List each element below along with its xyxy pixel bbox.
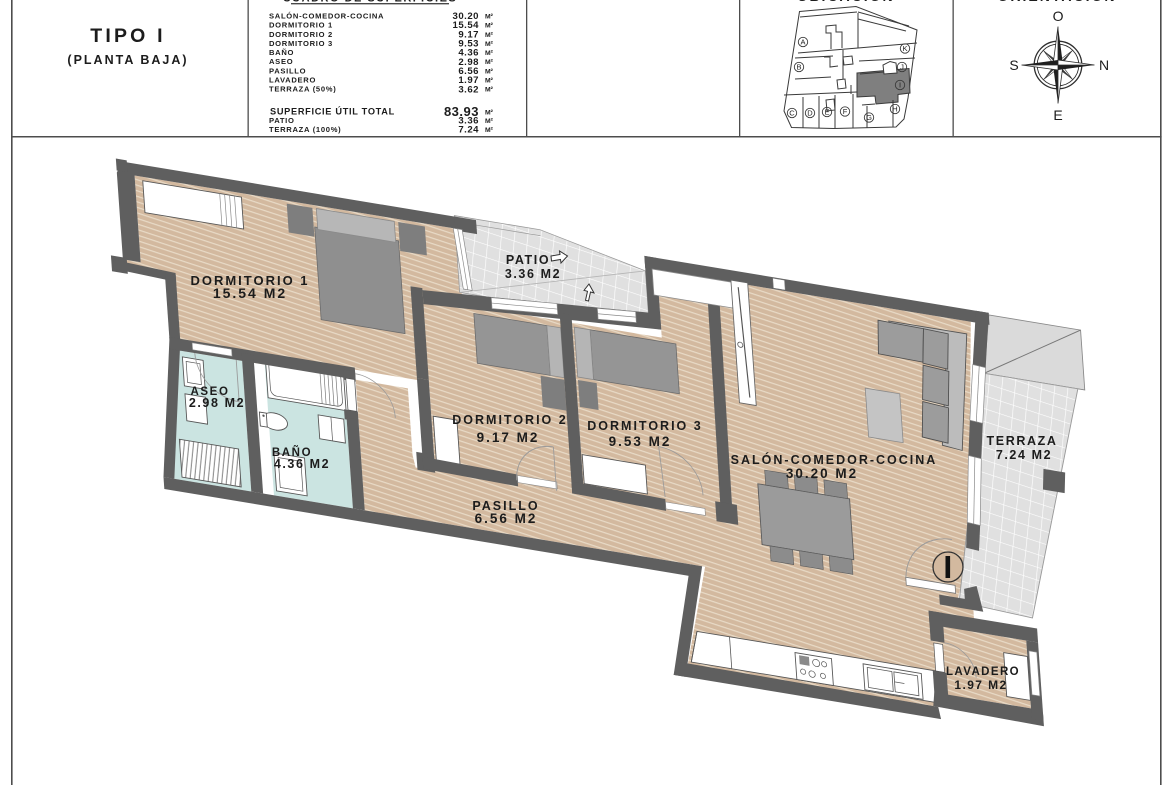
svg-text:J: J	[900, 63, 904, 72]
svg-text:PATIO: PATIO	[269, 116, 295, 125]
svg-text:DORMITORIO 3: DORMITORIO 3	[269, 39, 333, 48]
svg-text:ASEO: ASEO	[269, 57, 293, 66]
svg-text:O: O	[1053, 8, 1064, 24]
svg-text:6.56 M2: 6.56 M2	[475, 511, 538, 526]
svg-text:M²: M²	[485, 23, 494, 30]
svg-text:C: C	[789, 109, 795, 118]
svg-text:TERRAZA (50%): TERRAZA (50%)	[269, 85, 336, 94]
svg-text:TIPO I: TIPO I	[90, 25, 166, 47]
svg-text:M²: M²	[485, 59, 494, 66]
svg-text:M²: M²	[485, 110, 494, 117]
svg-text:B: B	[796, 63, 801, 72]
svg-text:9.17 M2: 9.17 M2	[477, 430, 540, 445]
svg-text:I: I	[899, 81, 901, 90]
svg-text:1.97 M2: 1.97 M2	[954, 678, 1007, 692]
svg-text:M²: M²	[485, 50, 494, 57]
svg-text:E: E	[824, 108, 829, 117]
svg-text:M²: M²	[485, 13, 494, 20]
svg-text:3.62: 3.62	[458, 84, 479, 95]
svg-text:7.24 M2: 7.24 M2	[996, 448, 1052, 462]
svg-text:SALÓN-COMEDOR-COCINA: SALÓN-COMEDOR-COCINA	[731, 452, 938, 467]
svg-text:BAÑO: BAÑO	[269, 48, 294, 57]
svg-text:DORMITORIO 3: DORMITORIO 3	[587, 419, 702, 433]
svg-text:H: H	[892, 105, 897, 114]
svg-text:G: G	[866, 113, 872, 122]
svg-text:TERRAZA: TERRAZA	[987, 434, 1058, 448]
svg-text:F: F	[843, 107, 848, 116]
svg-text:(PLANTA BAJA): (PLANTA BAJA)	[67, 53, 188, 67]
svg-text:D: D	[807, 109, 813, 118]
svg-text:S: S	[1009, 57, 1018, 73]
svg-text:TERRAZA (100%): TERRAZA (100%)	[269, 125, 341, 134]
svg-text:K: K	[902, 44, 907, 53]
svg-text:DORMITORIO 1: DORMITORIO 1	[269, 21, 333, 30]
svg-text:DORMITORIO 2: DORMITORIO 2	[269, 30, 333, 39]
svg-text:LAVADERO: LAVADERO	[269, 76, 316, 85]
svg-text:DORMITORIO 2: DORMITORIO 2	[452, 413, 567, 427]
svg-text:M²: M²	[485, 78, 494, 85]
svg-text:ORIENTACIÓN: ORIENTACIÓN	[998, 0, 1117, 4]
svg-text:3.36 M2: 3.36 M2	[505, 267, 561, 281]
svg-text:4.36 M2: 4.36 M2	[274, 457, 330, 471]
svg-text:15.54 M2: 15.54 M2	[213, 285, 287, 301]
svg-text:E: E	[1053, 107, 1062, 123]
svg-text:M²: M²	[485, 127, 494, 134]
svg-text:M²: M²	[485, 87, 494, 94]
svg-text:9.53 M2: 9.53 M2	[609, 434, 672, 449]
svg-text:7.24: 7.24	[458, 125, 479, 136]
svg-text:PATIO: PATIO	[506, 253, 550, 267]
svg-text:2.98 M2: 2.98 M2	[189, 396, 245, 410]
svg-text:PASILLO: PASILLO	[269, 66, 306, 75]
svg-text:M²: M²	[485, 118, 494, 125]
svg-text:LAVADERO: LAVADERO	[946, 666, 1020, 678]
svg-text:M²: M²	[485, 41, 494, 48]
svg-text:A: A	[800, 38, 805, 47]
svg-text:N: N	[1099, 57, 1109, 73]
svg-text:M²: M²	[485, 68, 494, 75]
svg-text:30.20 M2: 30.20 M2	[786, 466, 858, 481]
svg-text:UBICACIÓN: UBICACIÓN	[797, 0, 894, 4]
svg-text:SALÓN-COMEDOR-COCINA: SALÓN-COMEDOR-COCINA	[269, 11, 384, 20]
svg-text:M²: M²	[485, 32, 494, 39]
